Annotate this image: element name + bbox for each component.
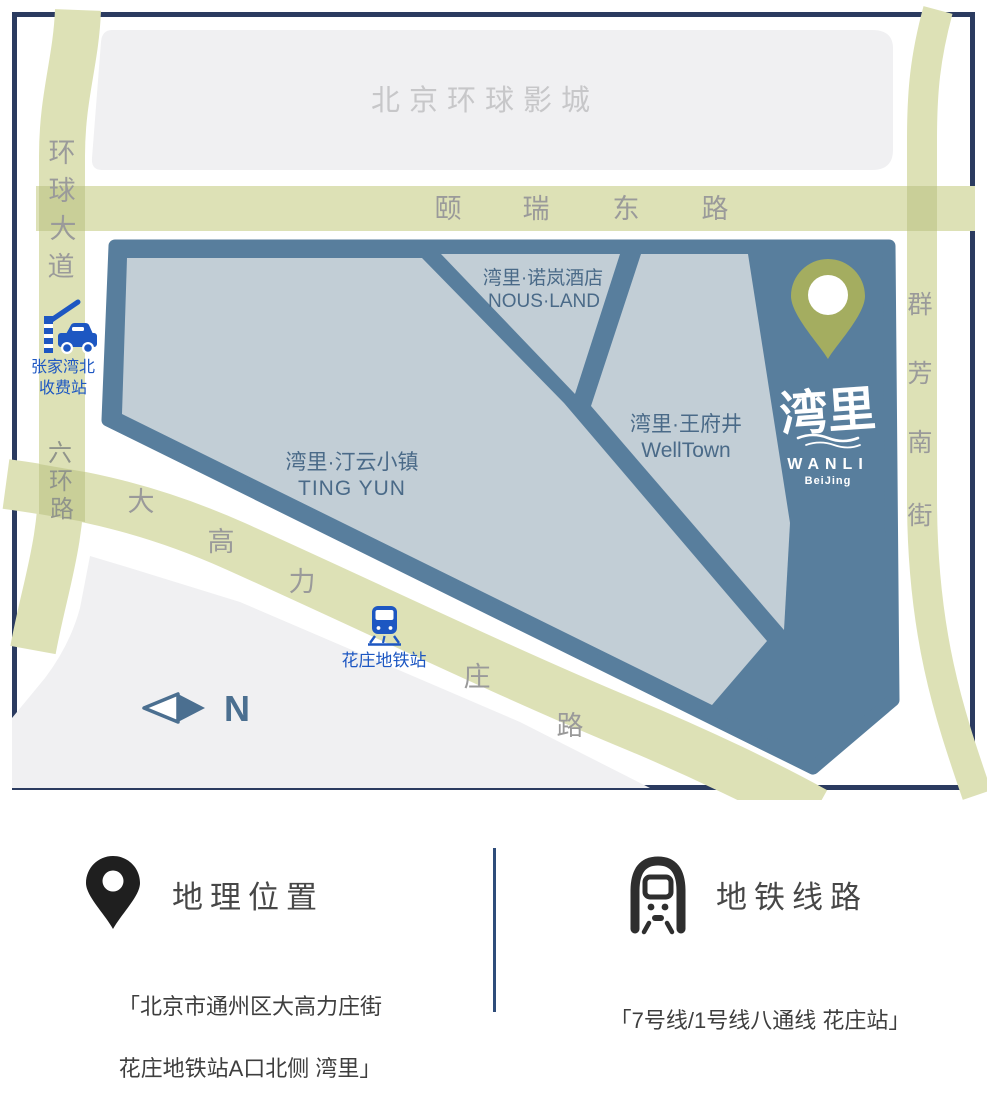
location-pin-icon <box>84 854 142 934</box>
compass-north-label: N <box>224 688 250 729</box>
road-char: 颐 <box>435 194 462 224</box>
universal-studios-label: 北京环球影城 <box>371 84 599 117</box>
road-overlap-east <box>907 186 937 231</box>
road-char: 环 <box>49 468 73 495</box>
road-char: 路 <box>702 194 729 224</box>
wanli-logo-cn: 湾里 <box>778 383 877 443</box>
road-yirui-east <box>36 186 975 231</box>
road-char: 环 <box>49 138 76 168</box>
metro-station-icon <box>368 606 401 645</box>
road-char: 道 <box>48 252 75 282</box>
info-divider <box>493 848 496 1012</box>
road-char: 球 <box>49 176 76 206</box>
nousland-label-cn: 湾里·诺岚酒店 <box>483 267 603 289</box>
tingyun-label-en: TING YUN <box>298 477 406 500</box>
location-title: 地理位置 <box>172 872 324 917</box>
wanli-logo: 湾里 WANLI BeiJing <box>778 383 877 487</box>
tingyun-label-cn: 湾里·汀云小镇 <box>286 451 419 474</box>
metro-title: 地铁线路 <box>716 872 868 917</box>
road-char: 芳 <box>907 360 932 388</box>
location-address: 「北京市通州区大高力庄街 花庄地铁站A口北侧 湾里」 <box>55 960 445 1115</box>
road-char: 高 <box>208 527 235 557</box>
road-char: 街 <box>907 502 932 530</box>
nousland-label-en: NOUS·LAND <box>488 291 600 312</box>
road-char: 东 <box>613 194 640 224</box>
wanli-logo-city: BeiJing <box>805 475 852 487</box>
location-address-line2: 花庄地铁站A口北侧 湾里」 <box>55 1053 445 1084</box>
wanli-logo-en: WANLI <box>787 456 869 473</box>
metro-line-icon <box>626 853 690 937</box>
road-char: 大 <box>128 487 155 517</box>
road-char: 庄 <box>464 662 491 692</box>
road-char: 瑞 <box>523 194 550 224</box>
road-label-sixth-ring: 六 环 路 <box>48 440 74 523</box>
metro-lines-line1: 「7号线/1号线八通线 花庄站」 <box>555 1005 965 1036</box>
metro-lines: 「7号线/1号线八通线 花庄站」 <box>555 974 965 1067</box>
road-char: 群 <box>907 291 932 319</box>
metro-station-label: 花庄地铁站 <box>342 651 427 670</box>
road-char: 大 <box>50 214 77 244</box>
welltown-label-en: WellTown <box>641 439 730 462</box>
road-char: 六 <box>48 440 72 467</box>
welltown-label-cn: 湾里·王府井 <box>630 413 742 436</box>
toll-label-line2: 收费站 <box>39 379 87 397</box>
road-char: 路 <box>50 496 74 523</box>
road-char: 路 <box>557 711 584 741</box>
location-address-line1: 「北京市通州区大高力庄街 <box>55 991 445 1022</box>
road-char: 南 <box>907 429 932 457</box>
location-map: 北京环球影城 颐 瑞 东 路 环 球 大 道 六 环 路 群 芳 南 街 大 高… <box>0 0 987 800</box>
toll-label-line1: 张家湾北 <box>31 358 95 376</box>
road-char: 力 <box>289 567 316 597</box>
